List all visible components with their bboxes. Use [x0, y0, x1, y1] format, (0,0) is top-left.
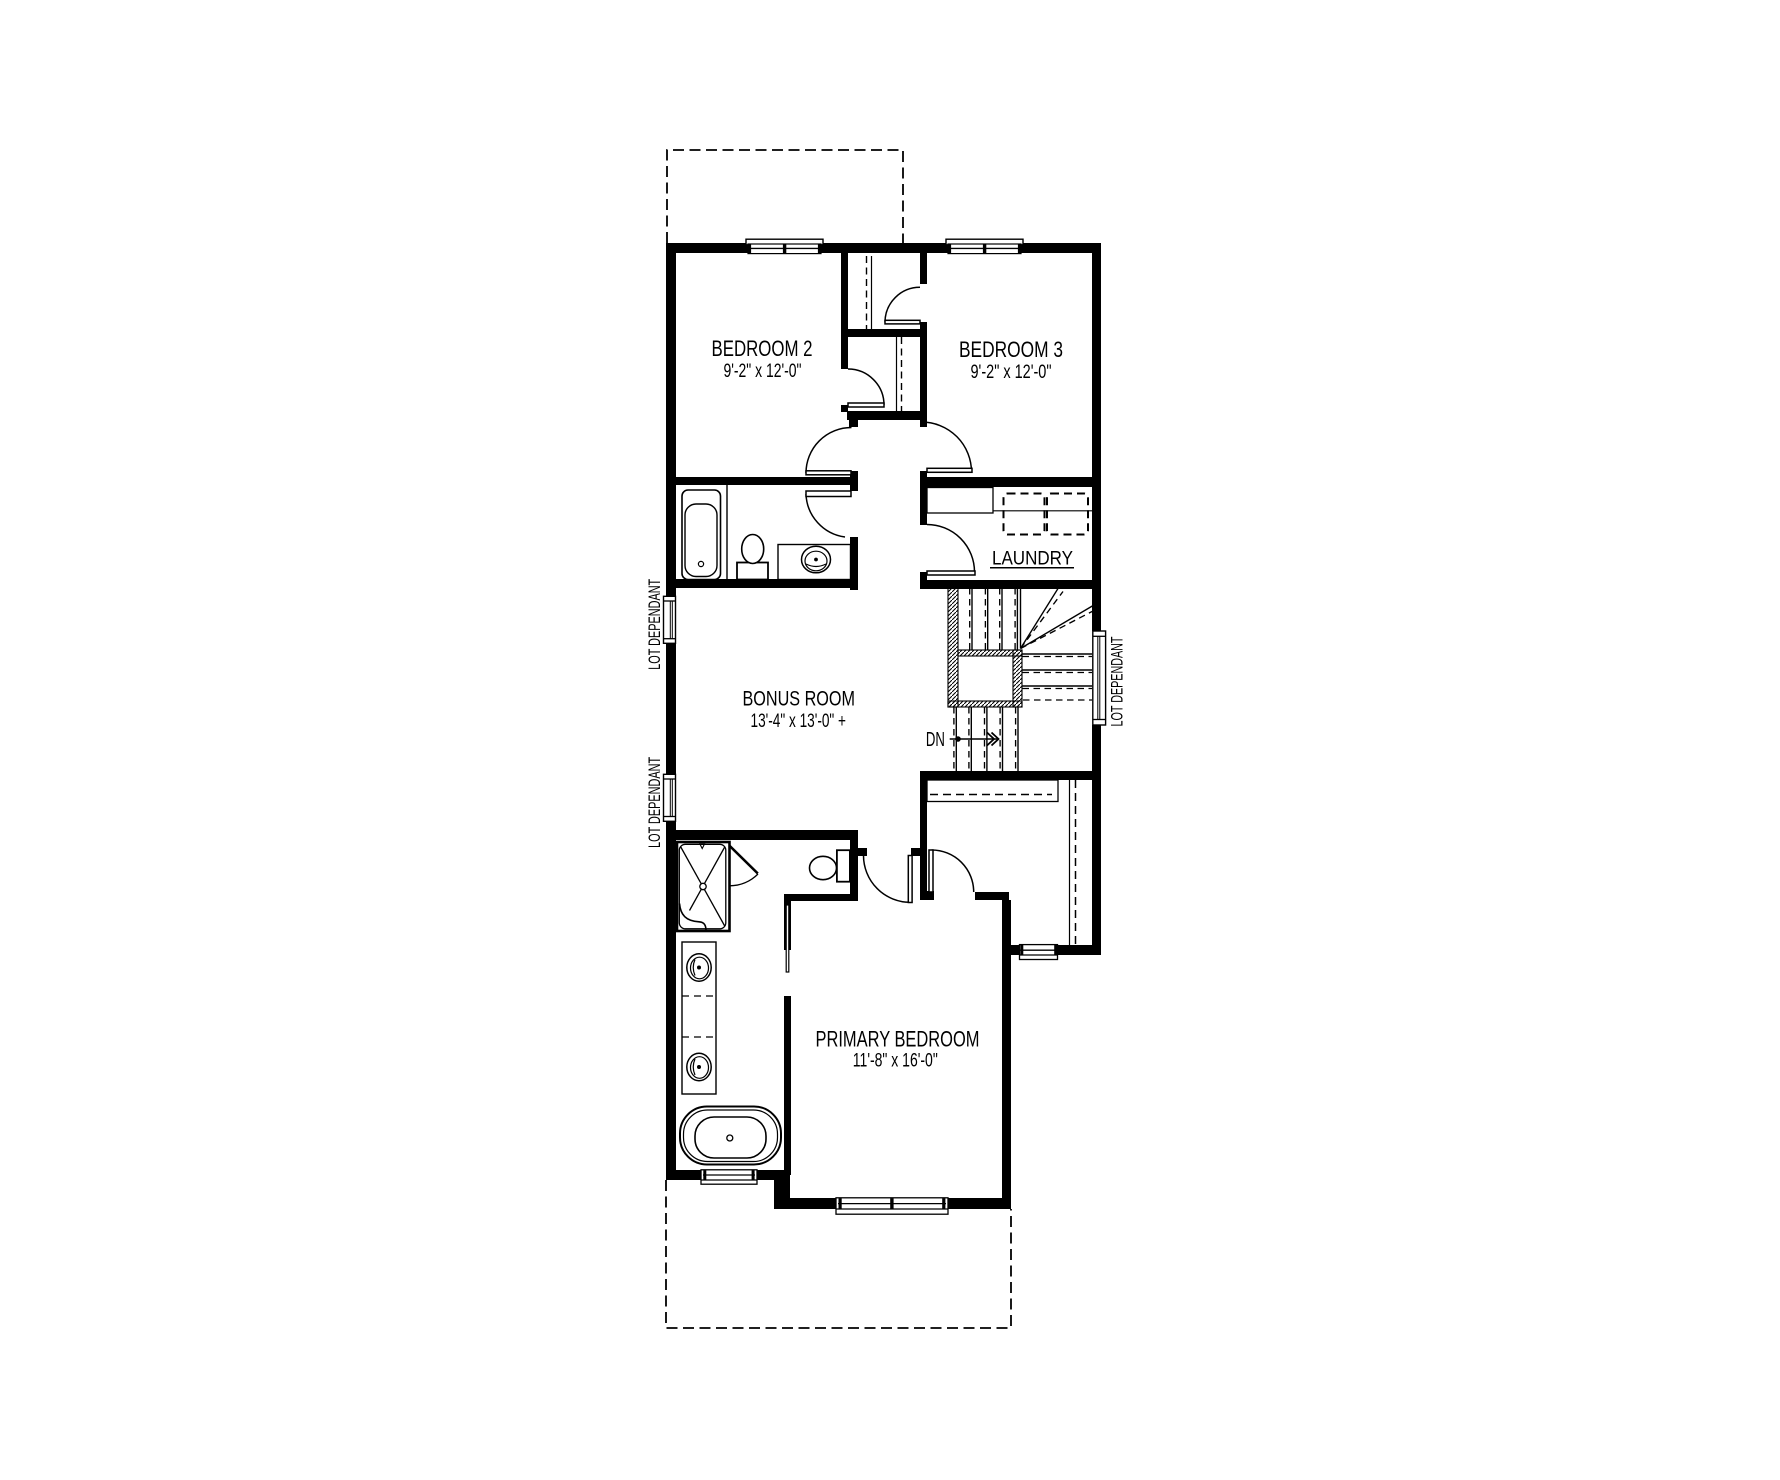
svg-text:DN: DN	[926, 728, 945, 751]
svg-text:LOT DEPENDANT: LOT DEPENDANT	[645, 579, 664, 670]
svg-text:LOT DEPENDANT: LOT DEPENDANT	[645, 757, 664, 848]
svg-text:LAUNDRY: LAUNDRY	[992, 548, 1073, 570]
svg-text:LOT DEPENDANT: LOT DEPENDANT	[1108, 637, 1127, 727]
svg-text:13'-4" x 13'-0" +: 13'-4" x 13'-0" +	[751, 711, 847, 732]
svg-text:BEDROOM 2: BEDROOM 2	[712, 336, 813, 361]
svg-text:PRIMARY BEDROOM: PRIMARY BEDROOM	[816, 1026, 980, 1051]
svg-text:BONUS ROOM: BONUS ROOM	[743, 688, 856, 711]
svg-text:11'-8" x 16'-0": 11'-8" x 16'-0"	[853, 1051, 938, 1072]
svg-text:9'-2" x 12'-0": 9'-2" x 12'-0"	[724, 361, 802, 382]
svg-text:9'-2" x 12'-0": 9'-2" x 12'-0"	[971, 362, 1052, 383]
svg-text:BEDROOM 3: BEDROOM 3	[959, 337, 1063, 362]
